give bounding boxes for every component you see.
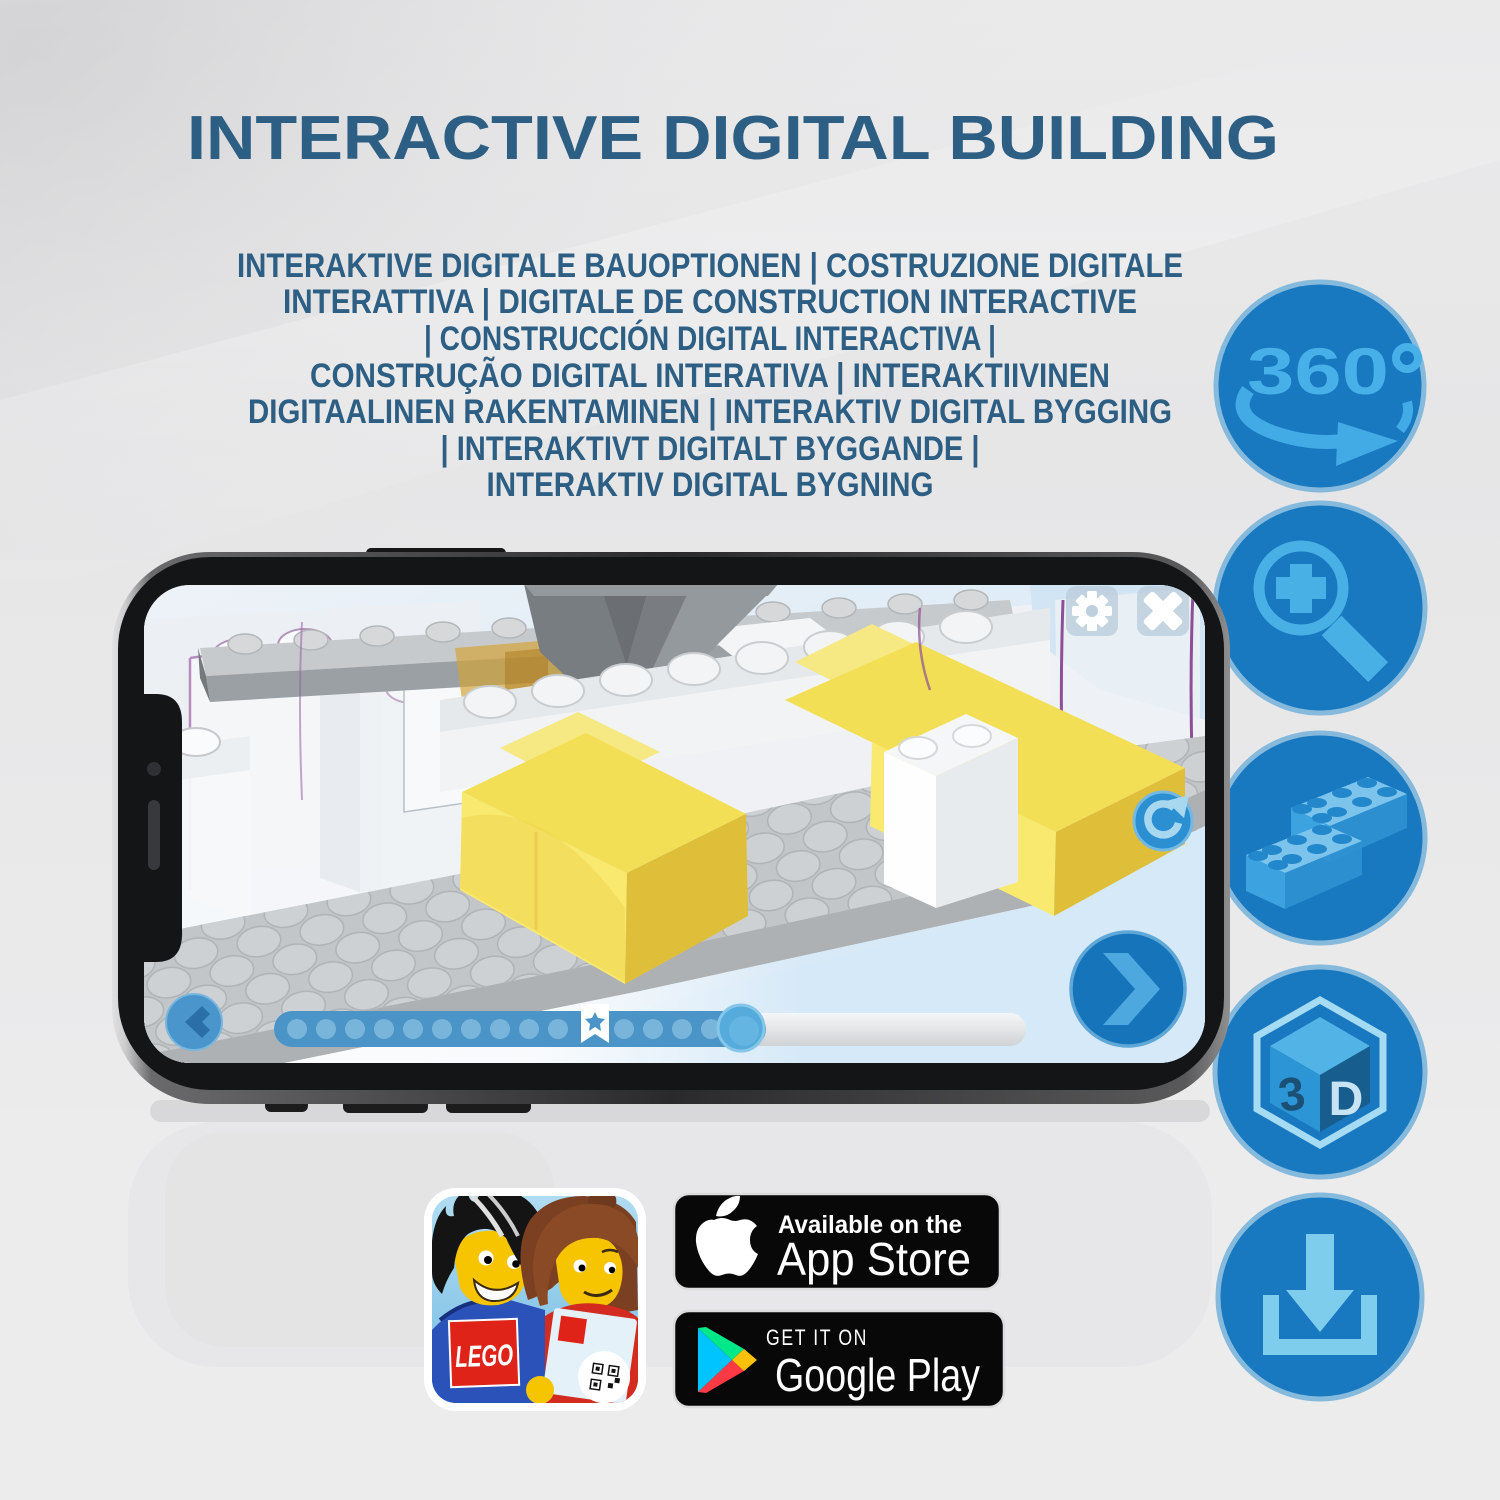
svg-text:App Store: App Store [777,1233,971,1285]
svg-text:Google Play: Google Play [775,1349,980,1401]
svg-text:D: D [1329,1073,1364,1126]
svg-text:INTERATTIVA | DIGITALE DE CONS: INTERATTIVA | DIGITALE DE CONSTRUCTION I… [283,283,1137,321]
svg-text:| INTERAKTIVT DIGITALT BYGGAND: | INTERAKTIVT DIGITALT BYGGANDE | [441,430,980,468]
svg-text:DIGITAALINEN RAKENTAMINEN | IN: DIGITAALINEN RAKENTAMINEN | INTERAKTIV D… [248,393,1172,431]
svg-text:| CONSTRUCCIÓN DIGITAL INTERAC: | CONSTRUCCIÓN DIGITAL INTERACTIVA | [424,320,996,358]
svg-text:LEGO: LEGO [455,1339,514,1374]
svg-text:GET IT ON: GET IT ON [766,1325,868,1350]
svg-text:360: 360 [1247,334,1389,408]
svg-text:CONSTRUÇÃO DIGITAL INTERATIVA: CONSTRUÇÃO DIGITAL INTERATIVA | INTERAKT… [310,357,1110,395]
svg-text:INTERAKTIVE DIGITALE BAUOPTION: INTERAKTIVE DIGITALE BAUOPTIONEN | COSTR… [237,247,1183,285]
svg-text:INTERACTIVE DIGITAL BUILDING: INTERACTIVE DIGITAL BUILDING [187,104,1279,173]
svg-text:INTERAKTIV DIGITAL BYGNING: INTERAKTIV DIGITAL BYGNING [487,466,934,504]
